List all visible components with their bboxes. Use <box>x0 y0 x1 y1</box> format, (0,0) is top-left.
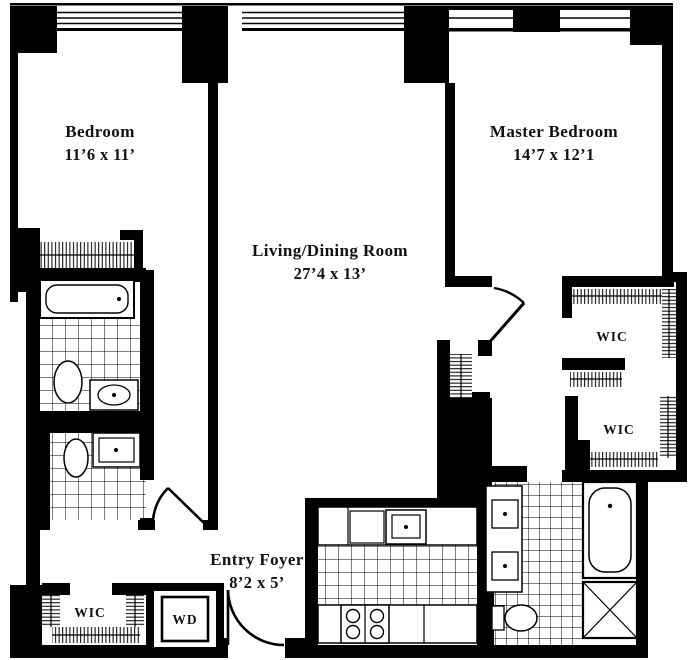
floor-plan-page: { "plan": { "type": "apartment-floor-pla… <box>0 0 694 660</box>
left-wall-upper <box>10 6 18 302</box>
wic-hall-north-wall-2 <box>112 583 148 595</box>
bedroom-closet-jamb-right <box>120 230 143 240</box>
core-wall-block <box>437 398 492 512</box>
wic2-rod-top <box>570 372 622 387</box>
master-bedroom-door <box>487 288 524 345</box>
toilet-1 <box>54 361 82 403</box>
bath-divider-wall <box>26 411 154 433</box>
master-west-wall <box>445 83 455 276</box>
kitchen-tile-floor <box>318 545 477 605</box>
wic-hall-rod-right <box>126 595 144 627</box>
bedroom-window <box>57 13 184 32</box>
hall-wall-seg1 <box>138 520 155 530</box>
burner <box>347 626 360 639</box>
master-bedroom-label: Master Bedroom <box>490 122 618 141</box>
sink-vanity-2 <box>93 433 140 467</box>
bathtub-master <box>583 482 637 578</box>
bedroom-label: Bedroom <box>65 122 135 141</box>
entry-foyer-label: Entry Foyer <box>210 550 304 569</box>
dishwasher <box>350 511 384 543</box>
wic-hall-rod-bottom <box>52 627 140 643</box>
toilet-master <box>492 605 537 631</box>
master-south-wall-right <box>562 276 674 287</box>
burner <box>347 610 360 623</box>
wic-hall-rod-left <box>42 595 60 627</box>
bath2-west-wall <box>26 433 50 530</box>
right-wall-wic <box>676 282 687 472</box>
wic2-rod-bottom <box>585 452 658 467</box>
corner-pier-top-right <box>630 6 673 45</box>
bathtub-1 <box>40 280 134 318</box>
master-wall-segment <box>513 6 560 32</box>
living-room-dims: 27’4 x 13’ <box>294 264 367 283</box>
hall-wall-seg2 <box>203 520 218 530</box>
entry-jamb-right <box>285 638 305 652</box>
stove <box>341 605 389 643</box>
wic-hall-north-wall-1 <box>42 583 70 595</box>
bedroom-closet-jamb-left <box>18 230 35 240</box>
living-room-label: Living/Dining Room <box>252 241 408 260</box>
washer-dryer-label: WD <box>172 612 197 627</box>
wic1-rod-right <box>662 289 676 358</box>
entry-foyer-dims: 8’2 x 5’ <box>229 573 284 592</box>
master-window-2 <box>560 6 630 32</box>
toilet-2 <box>64 439 88 477</box>
bedroom-wing-door <box>153 488 205 524</box>
wic-hall-label: WIC <box>74 605 106 620</box>
right-wall-master <box>662 45 673 282</box>
outer-face-line <box>10 3 673 6</box>
window-pier-2 <box>404 6 449 83</box>
wic1-rod-top <box>568 289 662 304</box>
bedroom-dims: 11’6 x 11’ <box>65 145 136 164</box>
master-window-1 <box>449 6 513 32</box>
wic2-rod-right <box>660 396 676 458</box>
living-west-wall <box>208 83 218 520</box>
floor-plan: Bedroom 11’6 x 11’ Living/Dining Room 27… <box>0 0 694 660</box>
living-window <box>242 13 404 32</box>
kitchen-sink <box>386 510 426 544</box>
double-vanity <box>486 486 522 592</box>
burner <box>371 626 384 639</box>
bottom-wall-right <box>285 645 648 658</box>
wic-upper-label: WIC <box>596 329 628 344</box>
bath-north-wall-left <box>488 466 527 482</box>
wic2-west-wall <box>565 396 578 442</box>
master-south-wall-left <box>445 276 492 287</box>
wic-divider-wall <box>562 358 625 370</box>
wic-lower-label: WIC <box>603 422 635 437</box>
burner <box>371 610 384 623</box>
window-pier-1 <box>182 6 228 83</box>
hall-closet-rod <box>450 354 472 400</box>
sink-vanity-1 <box>90 380 138 410</box>
kitchen-west-wall <box>305 498 318 652</box>
master-bedroom-dims: 14’7 x 12’1 <box>513 145 594 164</box>
bedroom-closet-rod <box>20 242 136 268</box>
entry-door <box>228 590 284 645</box>
shower <box>583 582 637 638</box>
